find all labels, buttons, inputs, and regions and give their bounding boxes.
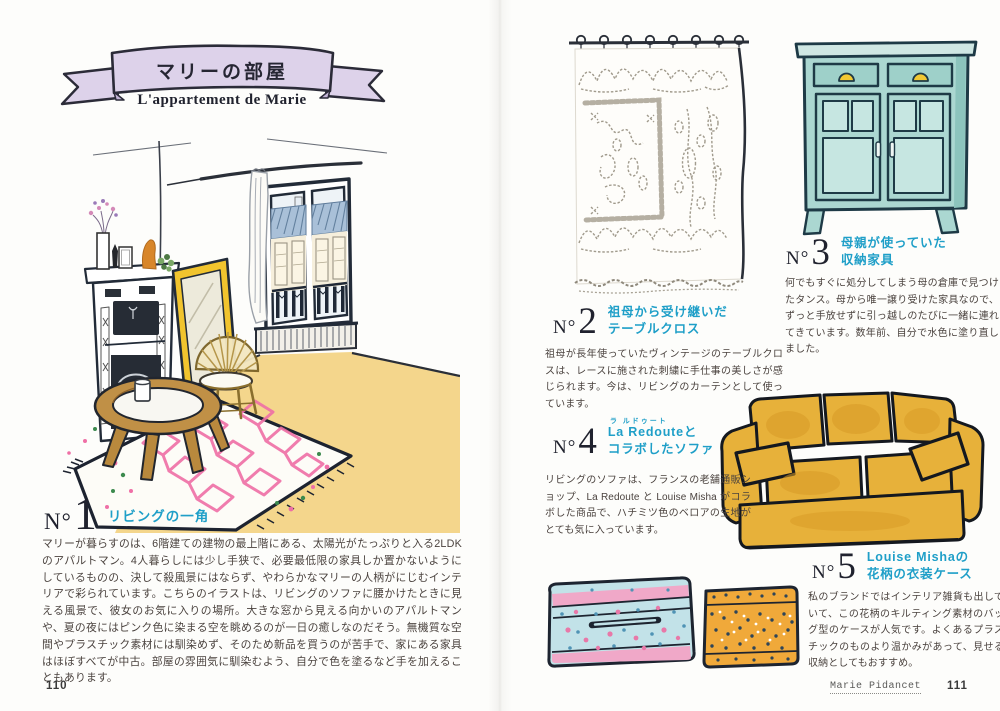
page-number-right: 111 xyxy=(947,680,968,692)
section2-heading: N°2 祖母から受け継いだ テーブルクロス xyxy=(553,304,728,337)
lace-tablecloth-illustration xyxy=(555,27,760,299)
curtain xyxy=(249,169,268,323)
section5-title-line1: Louise Mishaの xyxy=(867,549,973,566)
blue-floral-case xyxy=(549,578,694,666)
page-subtitle: L'appartement de Marie xyxy=(92,92,352,109)
vase xyxy=(97,233,109,269)
section2-no: N° xyxy=(553,317,576,338)
section5-body: 私のブランドではインテリア雑貨も出していて、この花柄のキルティング素材のバッグ型… xyxy=(808,590,1000,673)
section3-title-line1: 母親が使っていた xyxy=(841,235,947,252)
teal-cabinet-illustration xyxy=(790,30,982,238)
section4-title-line2: コラボしたソファ xyxy=(608,441,714,458)
author-credit: Marie Pidancet xyxy=(830,681,921,694)
section3-no: N° xyxy=(786,248,809,269)
section4-heading: N°4 ラ ルドゥート La Redouteと コラボしたソファ xyxy=(553,424,714,457)
section1-title: リビングの一角 xyxy=(108,509,210,526)
orange-figurine xyxy=(142,240,156,269)
section4-body: リビングのソファは、フランスの老舗通販ショップ、La Redoute と Lou… xyxy=(545,473,751,539)
section2-title-line1: 祖母から受け継いだ xyxy=(608,304,728,321)
storage-cases-illustration xyxy=(540,570,800,678)
section3-heading: N°3 母親が使っていた 収納家具 xyxy=(786,235,947,268)
window xyxy=(264,179,351,329)
section5-heading: N°5 Louise Mishaの 花柄の衣装ケース xyxy=(812,549,973,582)
section5-number: 5 xyxy=(837,546,856,587)
section4-no: N° xyxy=(553,437,576,458)
section5-no: N° xyxy=(812,562,835,583)
section2-number: 2 xyxy=(578,301,597,342)
section4-title-line1: La Redouteと xyxy=(608,424,714,441)
section4-ruby: ラ ルドゥート xyxy=(610,416,668,426)
section3-body: 何でもすぐに処分してしまう母の倉庫で見つけたタンス。母から唯一譲り受けた家具なの… xyxy=(785,276,999,359)
section3-number: 3 xyxy=(811,232,830,273)
page-left: マリーの部屋 L'appartement de Marie xyxy=(0,0,500,711)
section1-body: マリーが暮らすのは、6階建ての建物の最上階にある、太陽光がたっぷりと入る2LDK… xyxy=(42,536,462,687)
section1-heading: N°1 リビングの一角 xyxy=(44,496,209,533)
section1-number: 1 xyxy=(74,488,97,539)
living-room-illustration xyxy=(55,123,460,533)
book-spread: マリーの部屋 L'appartement de Marie xyxy=(0,0,1000,711)
orange-dotted-case xyxy=(704,587,798,667)
section1-no: N° xyxy=(44,509,72,534)
sofa-illustration xyxy=(710,387,995,555)
section2-title-line2: テーブルクロス xyxy=(608,321,728,338)
section4-number: 4 xyxy=(578,421,597,462)
section3-title-line2: 収納家具 xyxy=(841,252,947,269)
page-title: マリーの部屋 xyxy=(122,57,322,84)
page-number-left: 110 xyxy=(46,680,68,692)
page-right: N°2 祖母から受け継いだ テーブルクロス 祖母が長年使っていたヴィンテージのテ… xyxy=(500,0,1000,711)
section5-title-line2: 花柄の衣装ケース xyxy=(867,566,973,583)
black-figurine xyxy=(112,244,118,268)
radiator xyxy=(254,323,358,353)
